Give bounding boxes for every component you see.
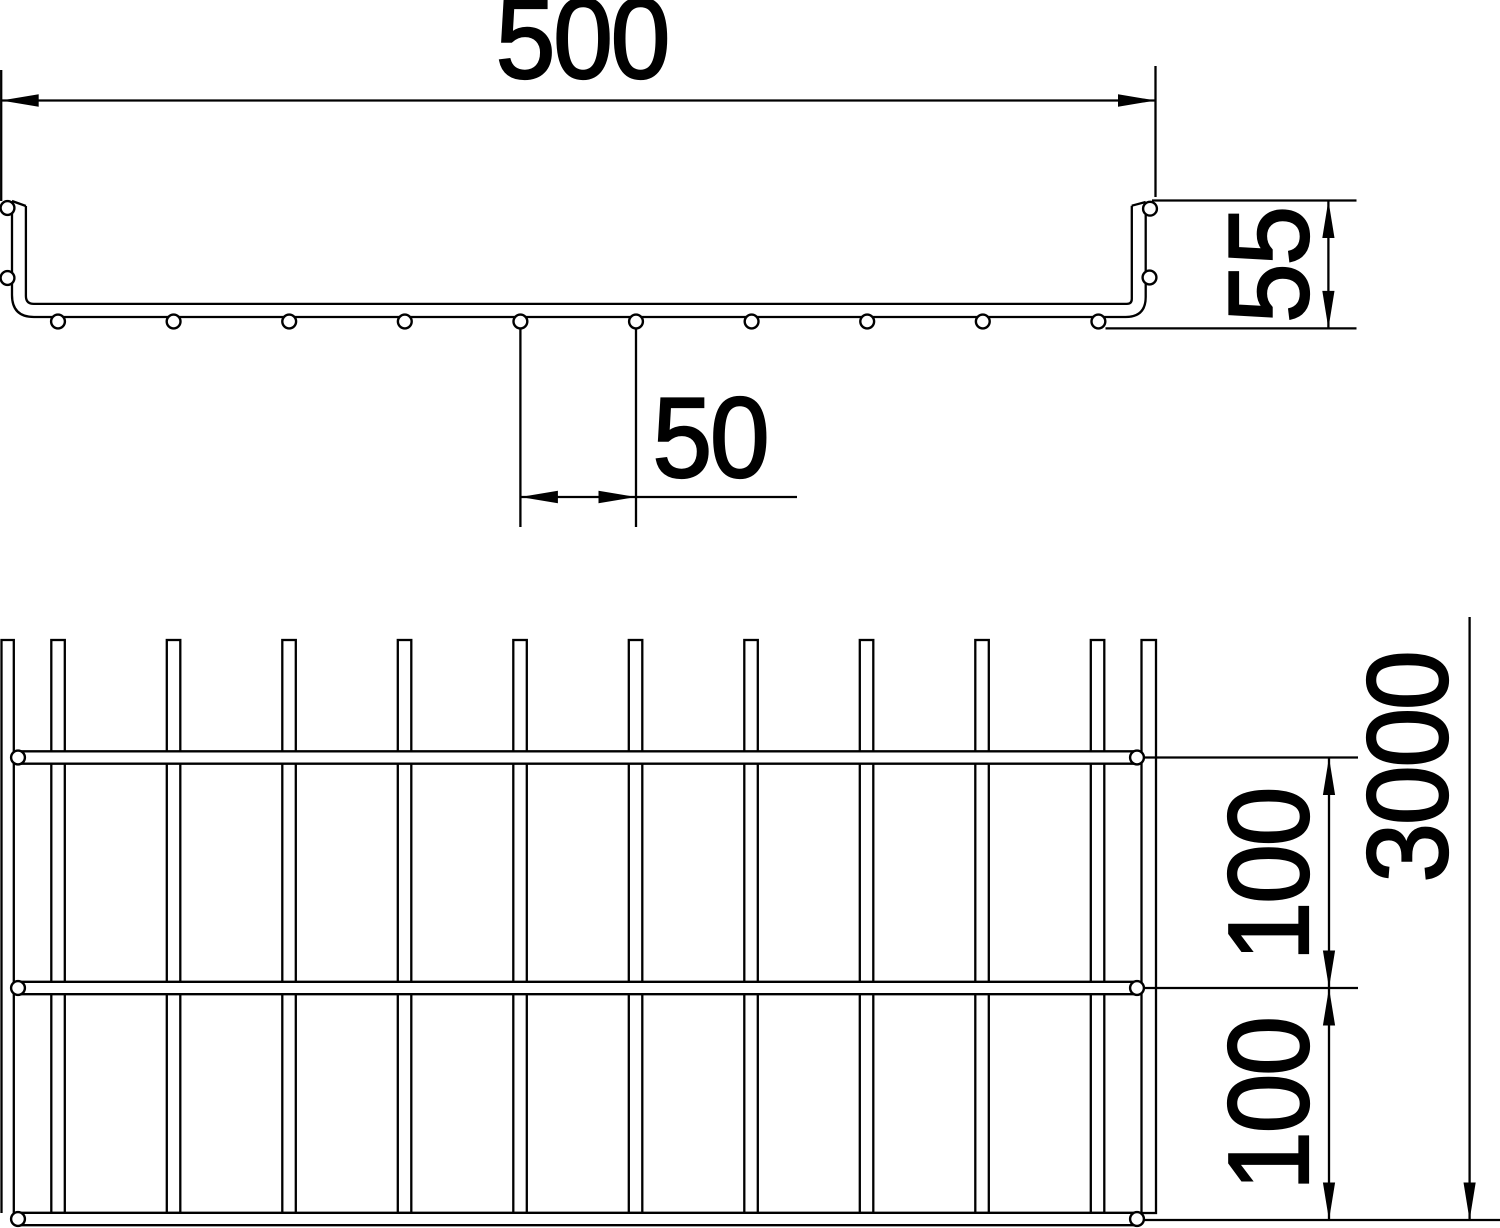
svg-text:3000: 3000 — [1345, 652, 1472, 882]
svg-text:50: 50 — [652, 375, 767, 502]
svg-text:500: 500 — [496, 0, 669, 103]
svg-text:55: 55 — [1206, 208, 1333, 323]
svg-text:100: 100 — [1206, 1018, 1333, 1191]
svg-text:100: 100 — [1206, 789, 1333, 962]
